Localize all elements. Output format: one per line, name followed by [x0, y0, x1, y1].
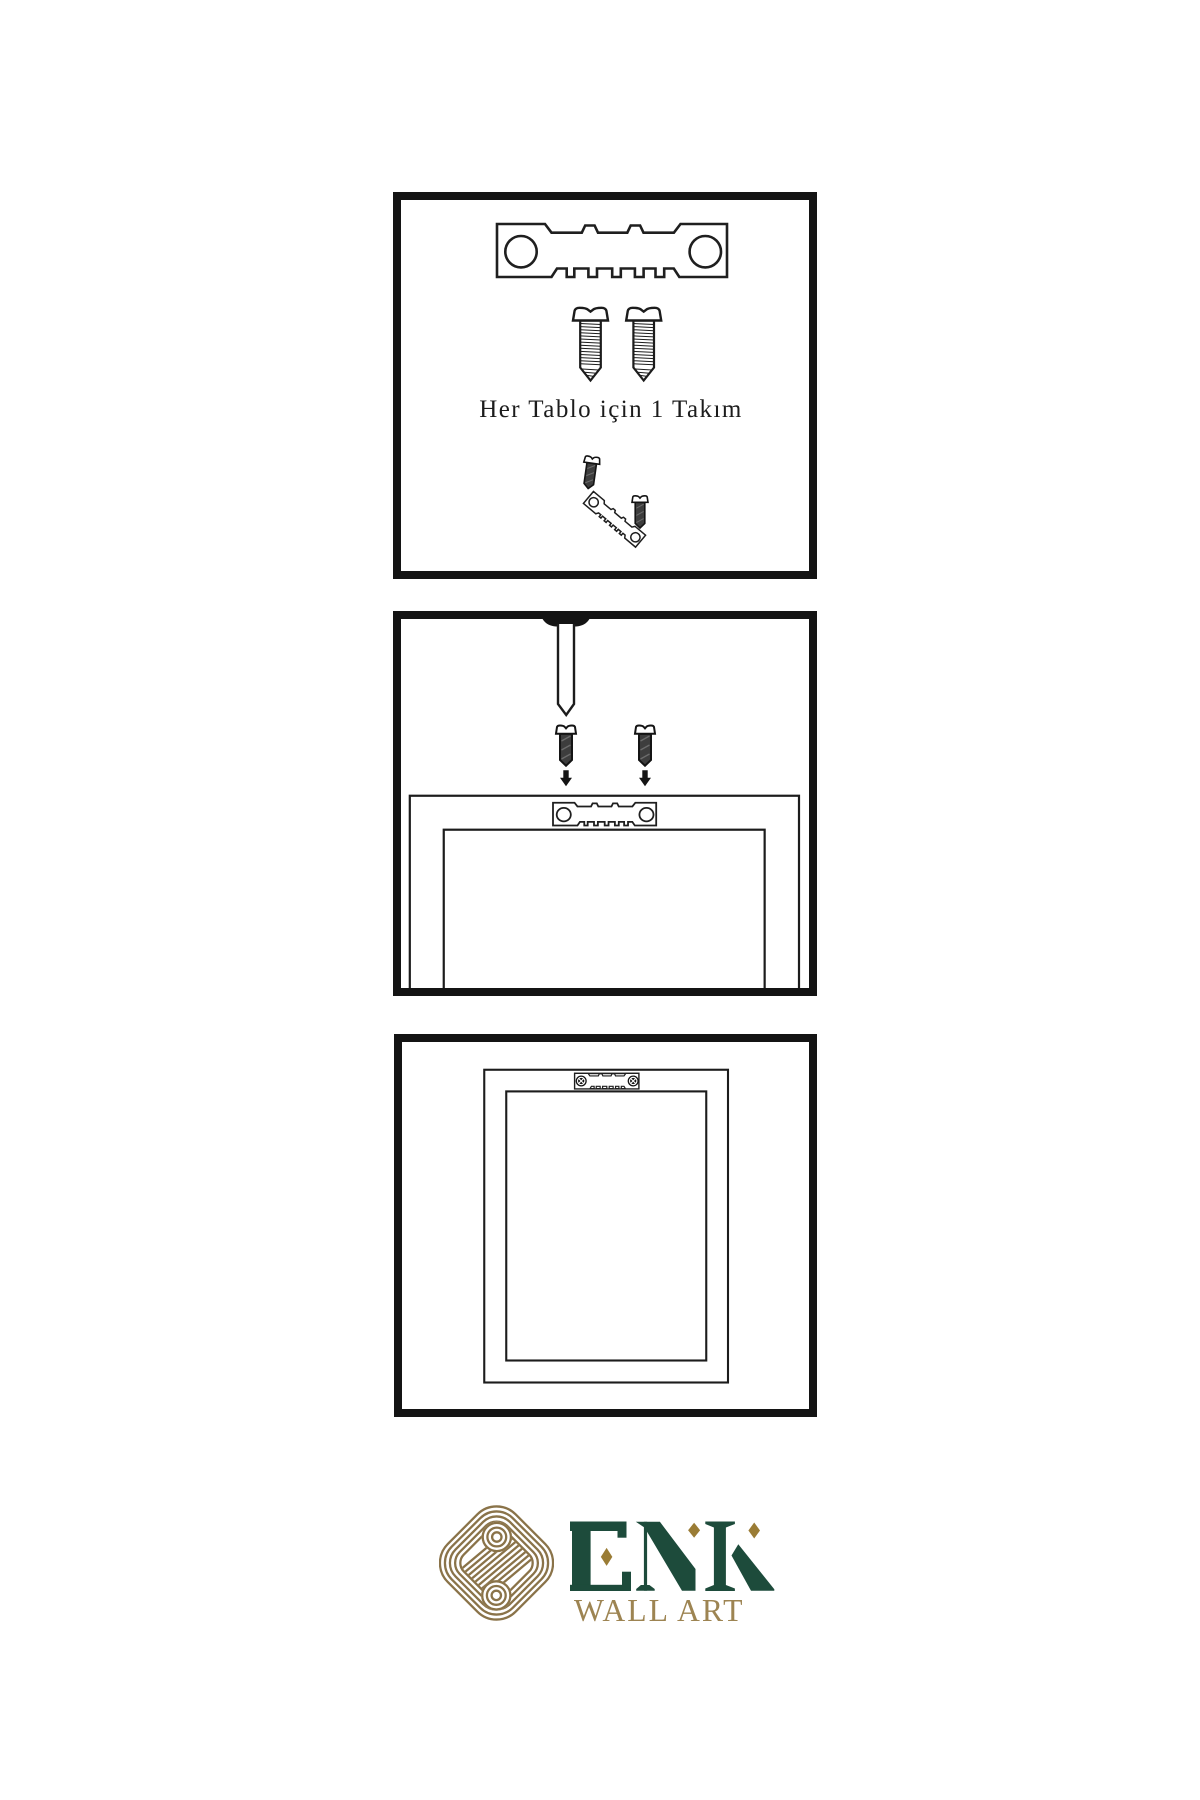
svg-text:WALL ART: WALL ART [574, 1593, 744, 1628]
